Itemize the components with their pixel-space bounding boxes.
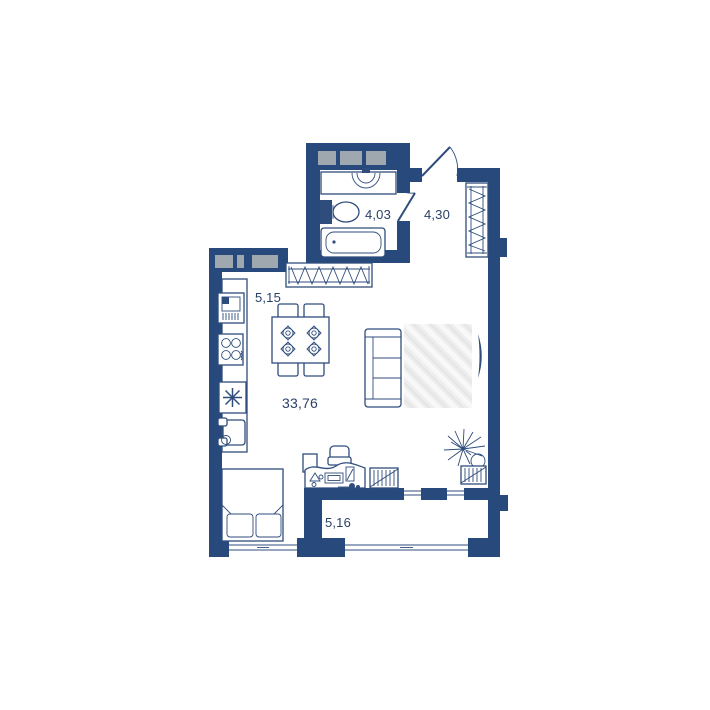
plant-icon [444, 429, 485, 468]
dining-table-icon [272, 317, 329, 363]
sofa-icon [365, 329, 401, 407]
bathroom-door-icon [398, 190, 415, 221]
wall-wardrobe-icon [286, 263, 372, 287]
bathroom-area-label: 4,03 [365, 207, 391, 222]
kitchen-fixtures [218, 279, 247, 452]
bed-icon [222, 469, 283, 541]
hallway-wardrobe-icon [466, 183, 488, 257]
washbasin-icon [321, 168, 396, 194]
window-icon [229, 545, 297, 550]
radiator-icon [461, 466, 486, 484]
balcony-area-label: 5,16 [325, 515, 351, 530]
desk-group [303, 446, 365, 489]
hallway-area-label: 4,30 [424, 207, 450, 222]
bathtub-icon [321, 228, 385, 257]
fridge-icon [219, 382, 246, 413]
entry-door-icon [422, 147, 458, 176]
kitchen-area-label: 5,15 [255, 290, 281, 305]
radiator-icon [370, 468, 398, 488]
kitchen-sink-icon [218, 293, 244, 323]
stove-icon [218, 334, 243, 365]
rug-icon [404, 324, 472, 408]
window-icon [318, 151, 386, 165]
dining-set [272, 304, 329, 376]
floor-plan: 4,03 4,30 5,15 33,76 5,16 [0, 0, 710, 710]
living-room-area-label: 33,76 [282, 395, 318, 411]
tv-icon [478, 334, 482, 378]
balcony-glazing-icon [345, 545, 468, 550]
toilet-icon [320, 200, 359, 224]
floor-plan-page: 4,03 4,30 5,15 33,76 5,16 [0, 0, 710, 710]
